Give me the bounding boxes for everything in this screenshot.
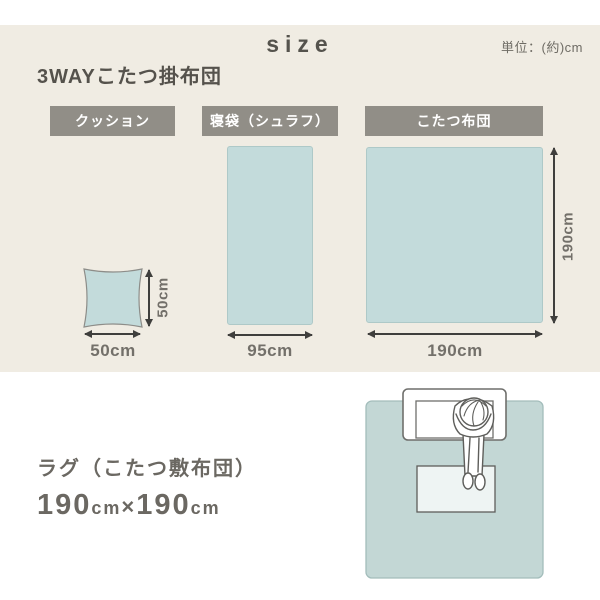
- futon-width-arrow: [368, 333, 542, 335]
- rug-size-num1: 190: [37, 489, 91, 521]
- label-sleeping-bag: 寝袋（シュラフ）: [202, 106, 338, 136]
- person-foot-right: [475, 474, 485, 490]
- cushion-shape: [84, 269, 142, 327]
- cushion-width-label: 50cm: [78, 341, 148, 361]
- top-section-heading: 3WAYこたつ掛布団: [37, 60, 222, 89]
- rug-illustration: [350, 380, 570, 592]
- futon-height-label: 190cm: [560, 202, 577, 272]
- cushion-width-arrow: [85, 333, 140, 335]
- futon-height-arrow: [553, 148, 555, 323]
- unit-note: 単位：(約)cm: [501, 37, 583, 56]
- rug-size-unit2: cm: [191, 498, 221, 518]
- sleeping-bag-width-arrow: [228, 334, 312, 336]
- sleeping-bag-shape: [227, 146, 313, 325]
- rug-size-num2: 190: [136, 489, 190, 521]
- rug-size-value: 190cm×190cm: [37, 489, 221, 522]
- size-diagram-page: { "header": { "title": "size", "unit_not…: [0, 0, 600, 600]
- sleeping-bag-width-label: 95cm: [227, 341, 313, 361]
- kotatsu-futon-shape: [366, 147, 543, 323]
- person-legs: [463, 434, 484, 476]
- label-cushion: クッション: [50, 106, 175, 136]
- cushion-illustration: [80, 265, 146, 331]
- label-sleeping-bag-text: 寝袋（シュラフ）: [210, 111, 330, 131]
- rug-size-unit1: cm: [91, 498, 121, 518]
- cushion-height-label: 50cm: [155, 268, 172, 328]
- label-cushion-text: クッション: [75, 111, 150, 131]
- label-kotatsu-futon: こたつ布団: [365, 106, 543, 136]
- person-foot-left: [463, 473, 473, 489]
- label-kotatsu-futon-text: こたつ布団: [417, 111, 492, 131]
- bottom-section-heading: ラグ（こたつ敷布団）: [37, 452, 257, 481]
- futon-width-label: 190cm: [367, 341, 543, 361]
- cushion-height-arrow: [148, 270, 150, 326]
- rug-size-times: ×: [121, 494, 136, 519]
